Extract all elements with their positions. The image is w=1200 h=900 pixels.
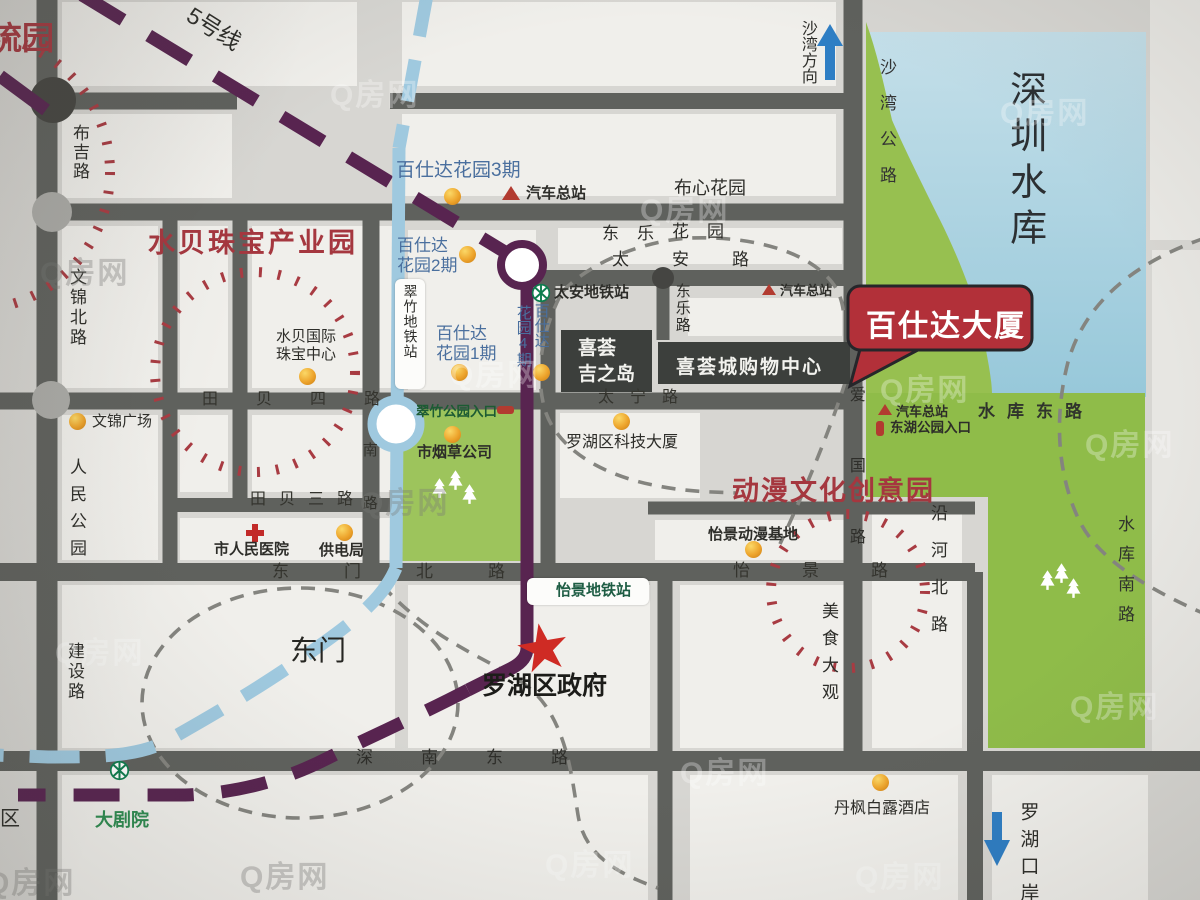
poi-bsd-garden4-left: 花园4期 <box>514 305 532 367</box>
direction-luohu-port: 罗湖口岸 <box>1016 802 1038 900</box>
poi-tech-tower: 罗湖区科技大厦 <box>566 434 678 453</box>
poi-wenjin-plaza: 文锦广场 <box>92 413 152 431</box>
junction-node <box>32 192 72 232</box>
road-label-tianbei4: 田贝四路 <box>202 391 418 410</box>
xihui-line1: 喜荟 <box>578 336 635 362</box>
road-label-reservoir-east: 水库东路 <box>978 402 1094 422</box>
bus-station-icon <box>762 284 776 295</box>
hospital-cross-icon <box>246 524 264 542</box>
yijing-station-label: 怡景地铁站 <box>556 582 631 600</box>
road-label-taining: 太宁路 <box>598 389 694 408</box>
road-label-wenjin-north: 文锦北路 <box>66 268 86 348</box>
bus-station-icon <box>878 404 892 415</box>
poi-dot <box>451 364 468 381</box>
luohu-gov-label: 罗湖区政府 <box>482 672 607 702</box>
road-label-dongle: 东乐路 <box>673 283 691 334</box>
poi-dot <box>613 413 630 430</box>
poi-hospital: 市人民医院 <box>214 541 289 559</box>
poi-tobacco: 市烟草公司 <box>417 444 492 462</box>
poi-dot <box>299 368 316 385</box>
estate-dongle: 东乐 <box>602 224 672 244</box>
poi-bsd-garden1: 百仕达 花园1期 <box>436 324 496 364</box>
reservoir-title: 深圳水库 <box>1003 70 1047 254</box>
poi-bsd-garden2-line1: 百仕达 <box>397 236 457 256</box>
poi-dot <box>69 413 86 430</box>
cuizhu-park-entrance-label: 翠竹公园入口 <box>416 404 497 420</box>
poi-bsd-garden2: 百仕达 花园2期 <box>397 236 457 276</box>
donghu-park-entrance-label: 东湖公园入口 <box>890 420 971 436</box>
poi-dot <box>336 524 353 541</box>
poi-food-street: 美食大观 <box>818 602 838 710</box>
xihuicheng-mall-label: 喜荟城购物中心 <box>676 352 823 379</box>
poi-hotel: 丹枫白露酒店 <box>834 800 930 819</box>
bus-station-label: 汽车总站 <box>526 185 586 203</box>
road-label-tianbei3: 田贝三路 <box>250 491 366 510</box>
xihui-line2: 吉之岛 <box>578 362 635 388</box>
partial-qu-label: 区 <box>0 808 20 832</box>
dongman-park-title: 动漫文化创意园 <box>732 476 935 508</box>
poi-dot <box>444 426 461 443</box>
road-label-v8-fragment: 南路 <box>360 442 378 548</box>
callout-label: 百仕达大厦 <box>866 301 1026 345</box>
interchange-station-ring <box>501 244 543 286</box>
estate-huayuan: 花园 <box>672 222 742 242</box>
xihui-jusco-label: 喜荟 吉之岛 <box>578 336 635 387</box>
direction-shawan: 沙湾方向 <box>797 20 816 84</box>
poi-anime-base: 怡景动漫基地 <box>708 526 798 544</box>
road-label-yijing: 怡景路 <box>733 561 940 581</box>
park-entrance-icon <box>876 421 884 436</box>
poi-bsd-garden2-line2: 花园2期 <box>397 256 457 276</box>
road-label-shennan-east: 深南东路 <box>356 748 616 768</box>
dongmen-landmark: 东门 <box>290 634 346 667</box>
poi-bsd-garden1-line1: 百仕达 <box>436 324 496 344</box>
road-label-taian: 太安路 <box>612 250 792 270</box>
bus-station-label: 汽车总站 <box>896 404 948 419</box>
taian-station-label: 太安地铁站 <box>554 284 629 302</box>
junction-node <box>652 267 674 289</box>
poi-dot <box>533 364 550 381</box>
poi-dot <box>444 188 461 205</box>
cuizhu-station-label: 翠竹地铁站 <box>402 284 419 359</box>
poi-bsd-garden3: 百仕达花园3期 <box>396 160 521 182</box>
theater-metro-icon <box>110 761 129 780</box>
road-label-jianshe: 建设路 <box>64 642 84 702</box>
bus-station-icon <box>502 186 520 200</box>
bus-station-label: 汽车总站 <box>780 283 832 298</box>
poi-dot <box>872 774 889 791</box>
road-label-buji: 布吉路 <box>69 124 89 181</box>
poi-bsd-garden1-line2: 花园1期 <box>436 344 496 364</box>
road-label-reservoir-south: 水库南路 <box>1114 515 1134 635</box>
poi-renmin-park: 人民公园 <box>66 458 86 566</box>
shuibei-park-title: 水贝珠宝产业园 <box>148 228 358 260</box>
theater-station-label: 大剧院 <box>95 810 149 831</box>
poi-bsd-garden4-right: 百仕达 <box>532 303 550 348</box>
shuibei-center-line2: 珠宝中心 <box>276 346 336 364</box>
road-label-shawan-highway: 沙湾公路 <box>876 58 896 202</box>
park-entrance-icon <box>497 406 514 414</box>
liuyuan-partial-title: 流园 <box>0 20 54 58</box>
taian-metro-icon <box>532 284 550 302</box>
poi-power-bureau: 供电局 <box>319 542 364 560</box>
junction-node <box>32 381 70 419</box>
road-label-dongmen-north: 东门北路 <box>272 562 560 582</box>
location-map: 流园 5号线 布吉路 百仕达花园3期 汽车总站 布心花园 沙湾方向 沙湾公路 深… <box>0 0 1200 900</box>
poi-dot <box>459 246 476 263</box>
poi-shuibei-center: 水贝国际 珠宝中心 <box>276 328 336 363</box>
poi-buxin-garden: 布心花园 <box>674 178 746 199</box>
shuibei-center-line1: 水贝国际 <box>276 328 336 346</box>
